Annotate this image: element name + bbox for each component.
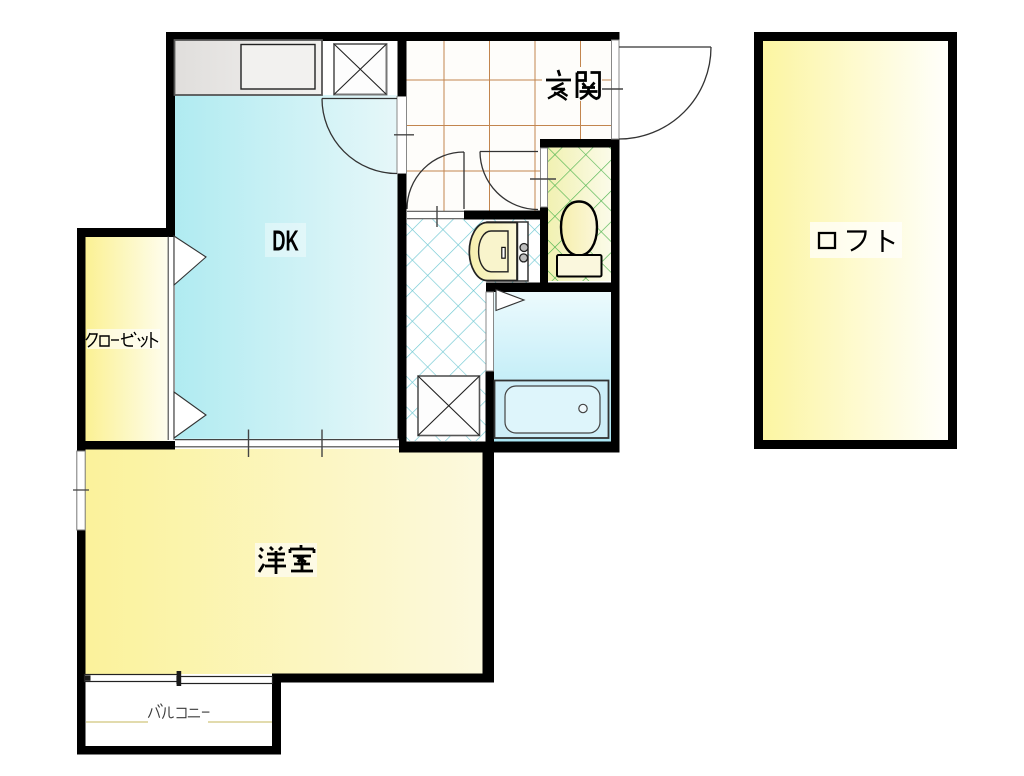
svg-text:DK: DK <box>272 226 299 258</box>
